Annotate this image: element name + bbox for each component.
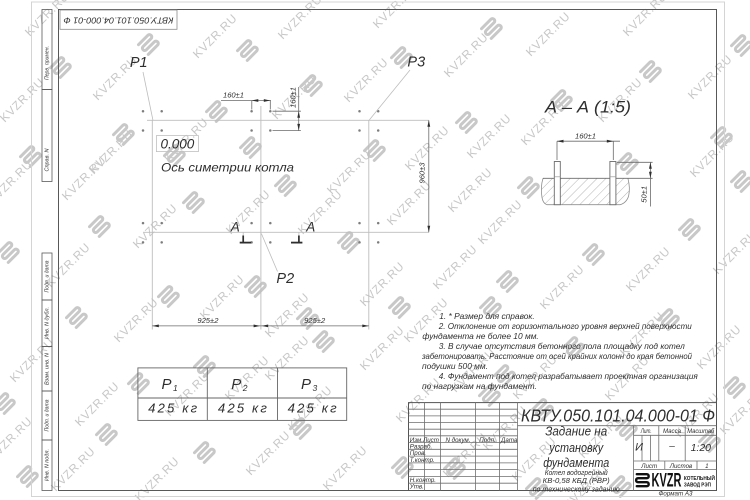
svg-text:КВТУ.050.101.04.000-01 Ф: КВТУ.050.101.04.000-01 Ф [521,405,715,425]
svg-text:Масштаб: Масштаб [687,428,714,435]
svg-text:Лист: Лист [640,463,657,470]
svg-text:925±2: 925±2 [197,316,219,325]
svg-text:по техническому заданию: по техническому заданию [533,484,620,493]
svg-text:КОТЕЛЬНЫЙ: КОТЕЛЬНЫЙ [684,474,715,482]
svg-text:0.000: 0.000 [161,137,195,152]
svg-text:подушки 500 мм.: подушки 500 мм. [422,361,488,371]
svg-text:Р1: Р1 [130,55,148,71]
svg-text:Подп. и дата: Подп. и дата [45,261,51,293]
svg-text:3. В случае отсутствия бетонно: 3. В случае отсутствия бетонного пола пл… [439,341,685,351]
svg-text:А: А [230,220,240,235]
svg-text:160±1: 160±1 [223,90,244,99]
svg-text:Листов: Листов [669,463,693,470]
svg-text:Утв.: Утв. [409,484,424,491]
svg-text:И: И [635,442,643,454]
svg-text:2. Отклонение от горизонтально: 2. Отклонение от горизонтального уровня … [438,321,692,331]
svg-text:Т.контр.: Т.контр. [410,457,435,464]
svg-text:Формат А3: Формат А3 [659,491,693,498]
svg-text:Взам. инв. N: Взам. инв. N [45,353,51,385]
svg-text:160±1: 160±1 [289,87,298,108]
svg-text:Ось симетрии котла: Ось симетрии котла [161,160,294,174]
svg-text:установку: установку [548,440,604,455]
svg-text:ЗАВОД РЭП: ЗАВОД РЭП [684,482,711,488]
svg-text:–: – [668,441,675,452]
svg-text:Р2: Р2 [276,271,294,287]
svg-text:Масса: Масса [663,428,682,435]
svg-text:N докум.: N докум. [445,437,470,444]
svg-text:Инв. N дубл.: Инв. N дубл. [45,307,51,339]
svg-text:1: 1 [705,463,708,470]
svg-text:925±2: 925±2 [304,316,326,325]
svg-text:Подп. и дата: Подп. и дата [45,400,51,432]
svg-text:Инв. N подл.: Инв. N подл. [45,449,51,481]
svg-text:забетонировать. Расстояние от: забетонировать. Расстояние от осей крайн… [421,351,692,361]
svg-text:50±1: 50±1 [639,186,648,203]
svg-text:KVZR: KVZR [652,471,682,492]
svg-text:А: А [305,220,315,235]
svg-text:Подп.: Подп. [479,437,495,444]
svg-text:Дата: Дата [500,437,518,444]
svg-text:1:20: 1:20 [691,442,712,454]
svg-text:160±1: 160±1 [575,132,596,141]
svg-text:Лит.: Лит. [640,428,652,435]
svg-text:4. Фундамент под котел разраба: 4. Фундамент под котел разрабатывает про… [439,371,699,381]
svg-text:по нагрузкам на фундамент.: по нагрузкам на фундамент. [422,381,537,391]
svg-text:Задание на: Задание на [545,424,607,439]
svg-text:фундамента не более 10 мм.: фундамента не более 10 мм. [422,331,538,341]
svg-text:1. * Размер для справок.: 1. * Размер для справок. [439,311,535,321]
svg-text:Справ. N: Справ. N [45,148,51,171]
svg-text:А – А (1:5): А – А (1:5) [544,99,631,117]
svg-text:960±3: 960±3 [417,162,426,184]
svg-text:КВТУ.050.101.04.000-01 Ф: КВТУ.050.101.04.000-01 Ф [63,15,174,24]
svg-text:Перв. примен.: Перв. примен. [45,46,51,80]
svg-text:Р3: Р3 [407,55,425,71]
